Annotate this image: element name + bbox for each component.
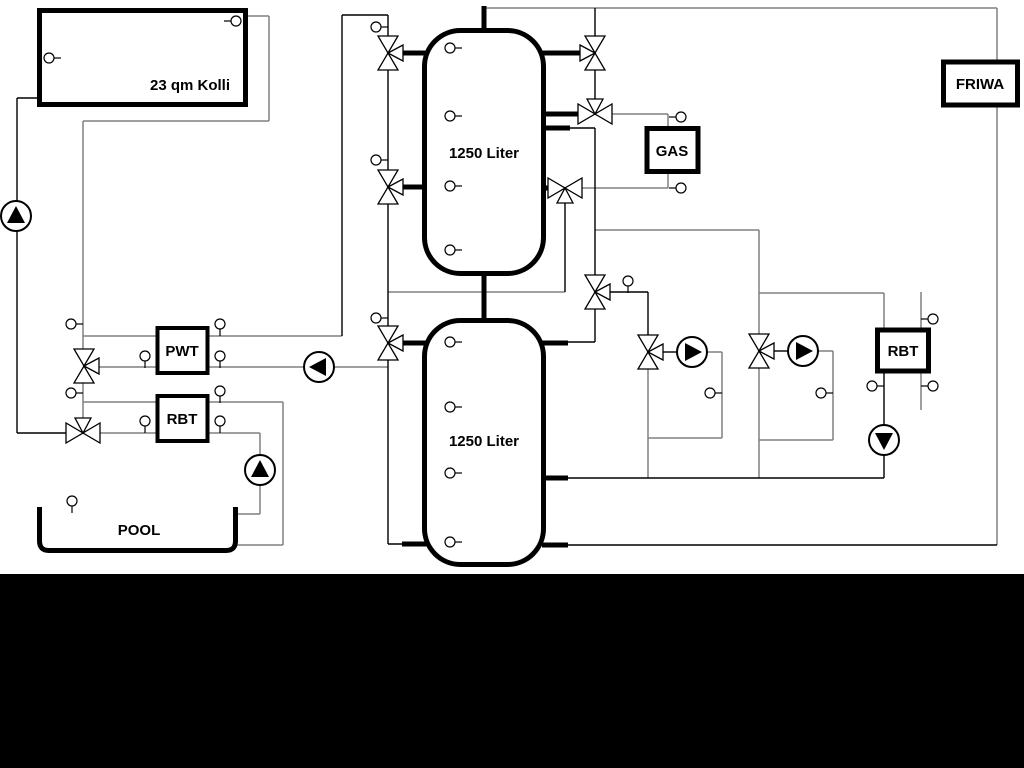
- three-way-valve-2: [378, 170, 403, 204]
- pool-label: POOL: [118, 522, 161, 539]
- temp-sensor-11: [371, 22, 388, 32]
- three-way-valve-9: [585, 275, 610, 309]
- temp-sensor-27: [867, 381, 884, 391]
- rbt-right-label: RBT: [888, 343, 919, 360]
- temp-sensor-6: [140, 416, 150, 433]
- temp-sensor-12: [371, 155, 388, 165]
- bottom-black-band: [0, 574, 1024, 768]
- three-way-valve-11: [749, 334, 774, 368]
- three-way-valve-8: [548, 178, 582, 203]
- three-way-valve-10: [638, 335, 663, 369]
- temp-sensor-24: [623, 276, 633, 293]
- temp-sensor-28: [921, 314, 938, 324]
- hydraulic-schematic-page: 23 qm Kolli 1250 Liter 1250 Liter GAS FR…: [0, 0, 1024, 768]
- temp-sensor-4: [66, 388, 83, 398]
- temp-sensor-30: [67, 496, 77, 513]
- temp-sensor-9: [215, 386, 225, 403]
- temp-sensor-29: [921, 381, 938, 391]
- temp-sensor-22: [669, 112, 686, 122]
- temp-sensor-8: [215, 351, 225, 368]
- pump-solar: [1, 201, 31, 231]
- pump-pwt: [304, 352, 334, 382]
- pump-pool: [245, 455, 275, 485]
- temp-sensor-10: [215, 416, 225, 433]
- buffer-tank-upper-label: 1250 Liter: [449, 145, 519, 162]
- three-way-valve-6: [580, 36, 605, 70]
- rbt-left-label: RBT: [167, 411, 198, 428]
- buffer-tank-lower-label: 1250 Liter: [449, 433, 519, 450]
- temp-sensor-25: [705, 388, 722, 398]
- schematic-canvas: 23 qm Kolli 1250 Liter 1250 Liter GAS FR…: [0, 0, 1024, 768]
- three-way-valve-1: [378, 36, 403, 70]
- temp-sensor-23: [669, 183, 686, 193]
- pump-heating-loop-2: [788, 336, 818, 366]
- three-way-valve-3: [378, 326, 403, 360]
- pump-heating-loop-1: [677, 337, 707, 367]
- temp-sensor-3: [66, 319, 83, 329]
- pwt-label: PWT: [165, 343, 198, 360]
- gas-boiler-label: GAS: [656, 143, 689, 160]
- friwa-label: FRIWA: [956, 76, 1004, 93]
- temp-sensor-26: [816, 388, 833, 398]
- temp-sensor-5: [140, 351, 150, 368]
- temp-sensor-13: [371, 313, 388, 323]
- three-way-valve-4: [74, 349, 99, 383]
- three-way-valve-7: [578, 99, 612, 124]
- pump-rbt: [869, 425, 899, 455]
- three-way-valve-5: [66, 418, 100, 443]
- temp-sensor-7: [215, 319, 225, 336]
- solar-collector-label: 23 qm Kolli: [150, 77, 230, 94]
